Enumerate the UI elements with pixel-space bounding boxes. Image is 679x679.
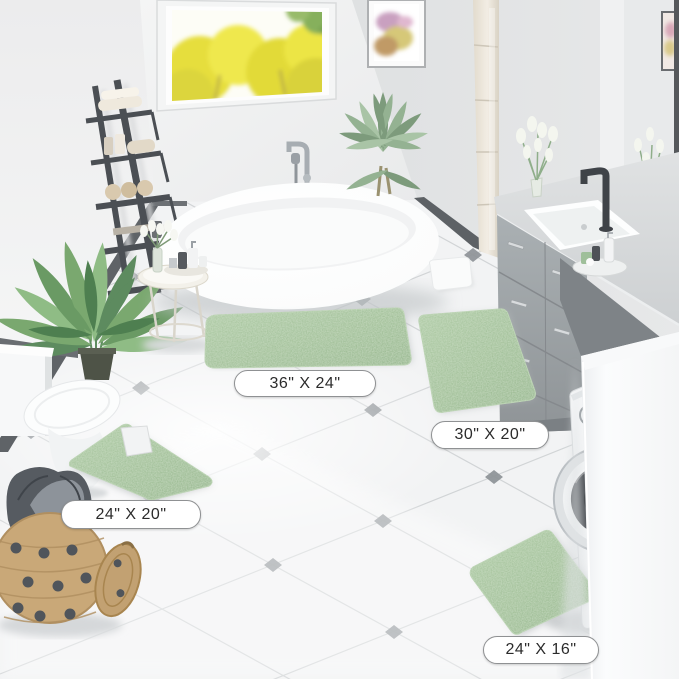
size-label-rug-runner: 30" X 20" [431,421,549,449]
size-label-rug-contour: 24" X 20" [61,500,201,529]
size-label-rug-large: 36" X 24" [234,370,376,397]
wall-art-frame [368,0,425,67]
floor-towel [429,257,474,292]
product-photo-bathroom-rug-set: 36" X 24" 30" X 20" 24" X 20" 24" X 16" [0,0,679,679]
bathroom-scene [0,0,679,679]
rug-large [205,308,411,368]
plant-pot [80,352,114,380]
size-label-rug-small: 24" X 16" [483,636,599,664]
rug-contour-notch [121,426,152,456]
